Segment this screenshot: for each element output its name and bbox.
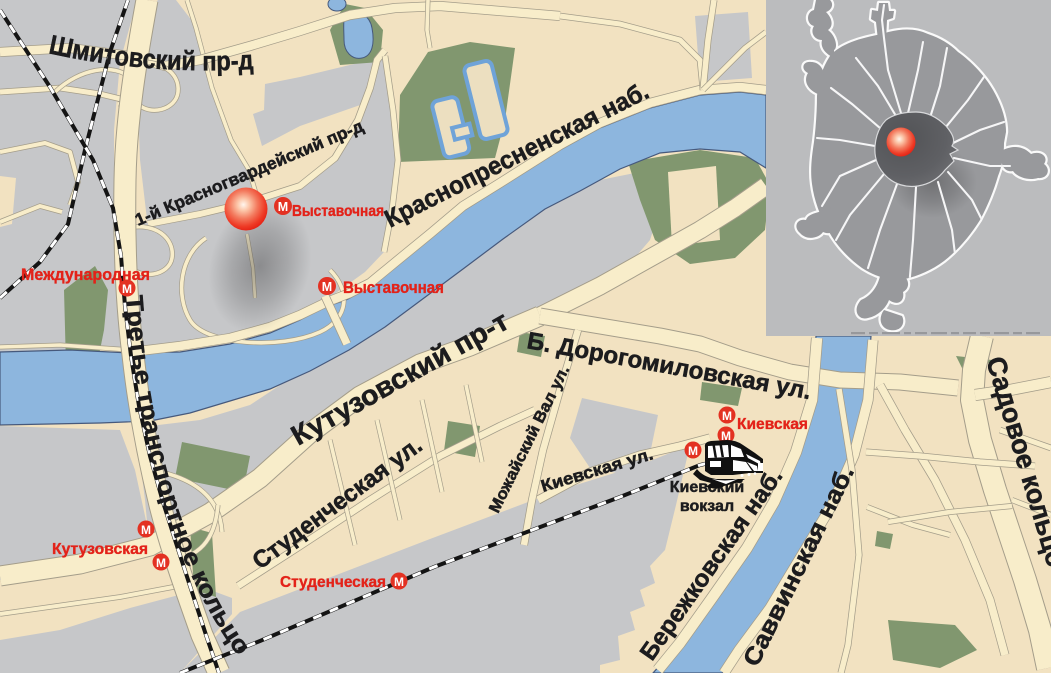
svg-text:Выставочная: Выставочная: [343, 278, 444, 297]
svg-text:М: М: [278, 200, 288, 214]
svg-text:Кутузовская: Кутузовская: [52, 541, 148, 558]
svg-text:М: М: [156, 556, 166, 570]
svg-text:вокзал: вокзал: [680, 498, 734, 515]
svg-text:М: М: [141, 523, 151, 537]
svg-text:Выставочная: Выставочная: [292, 203, 384, 220]
svg-text:М: М: [722, 409, 732, 423]
svg-text:Студенческая: Студенческая: [280, 574, 386, 591]
svg-text:Киевская: Киевская: [737, 416, 808, 433]
svg-text:М: М: [322, 280, 332, 294]
svg-text:М: М: [688, 444, 698, 458]
svg-text:М: М: [122, 282, 132, 296]
svg-text:М: М: [394, 575, 404, 589]
